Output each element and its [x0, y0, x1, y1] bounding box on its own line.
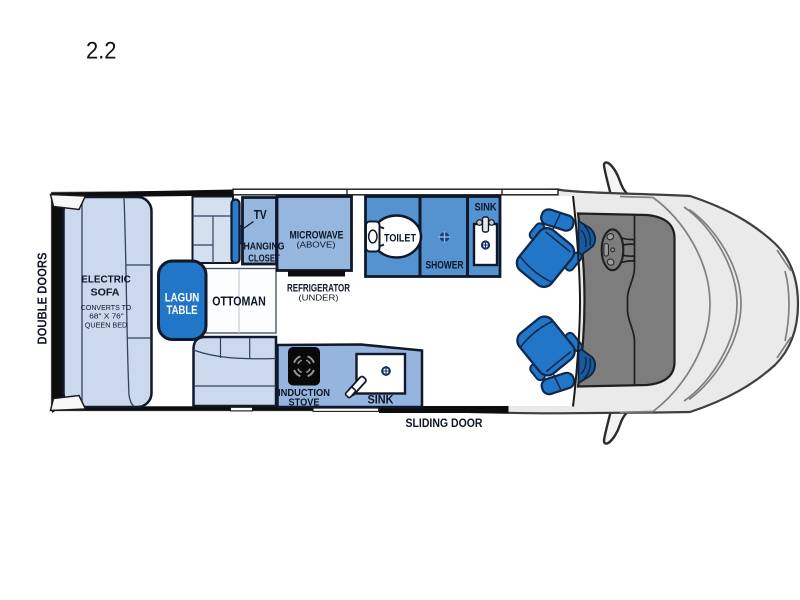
svg-text:STOVE: STOVE: [289, 397, 320, 409]
svg-text:ELECTRIC: ELECTRIC: [81, 274, 131, 286]
svg-text:QUEEN BED: QUEEN BED: [85, 321, 128, 330]
svg-text:SINK: SINK: [368, 395, 395, 407]
svg-text:DOUBLE DOORS: DOUBLE DOORS: [34, 252, 49, 344]
svg-text:(UNDER): (UNDER): [299, 293, 339, 303]
svg-text:TV: TV: [254, 208, 268, 222]
svg-text:HANGING: HANGING: [244, 241, 285, 253]
svg-text:TOILET: TOILET: [384, 233, 416, 245]
svg-text:CLOSET: CLOSET: [248, 253, 280, 265]
svg-text:SOFA: SOFA: [91, 287, 120, 299]
svg-text:2.2: 2.2: [86, 38, 117, 65]
svg-text:SHOWER: SHOWER: [426, 260, 464, 272]
svg-text:SINK: SINK: [475, 202, 497, 214]
svg-text:(ABOVE): (ABOVE): [297, 240, 336, 250]
svg-text:OTTOMAN: OTTOMAN: [212, 294, 266, 309]
svg-text:TABLE: TABLE: [167, 303, 198, 317]
svg-text:68" X 76": 68" X 76": [89, 312, 124, 321]
svg-text:SLIDING DOOR: SLIDING DOOR: [406, 418, 484, 430]
